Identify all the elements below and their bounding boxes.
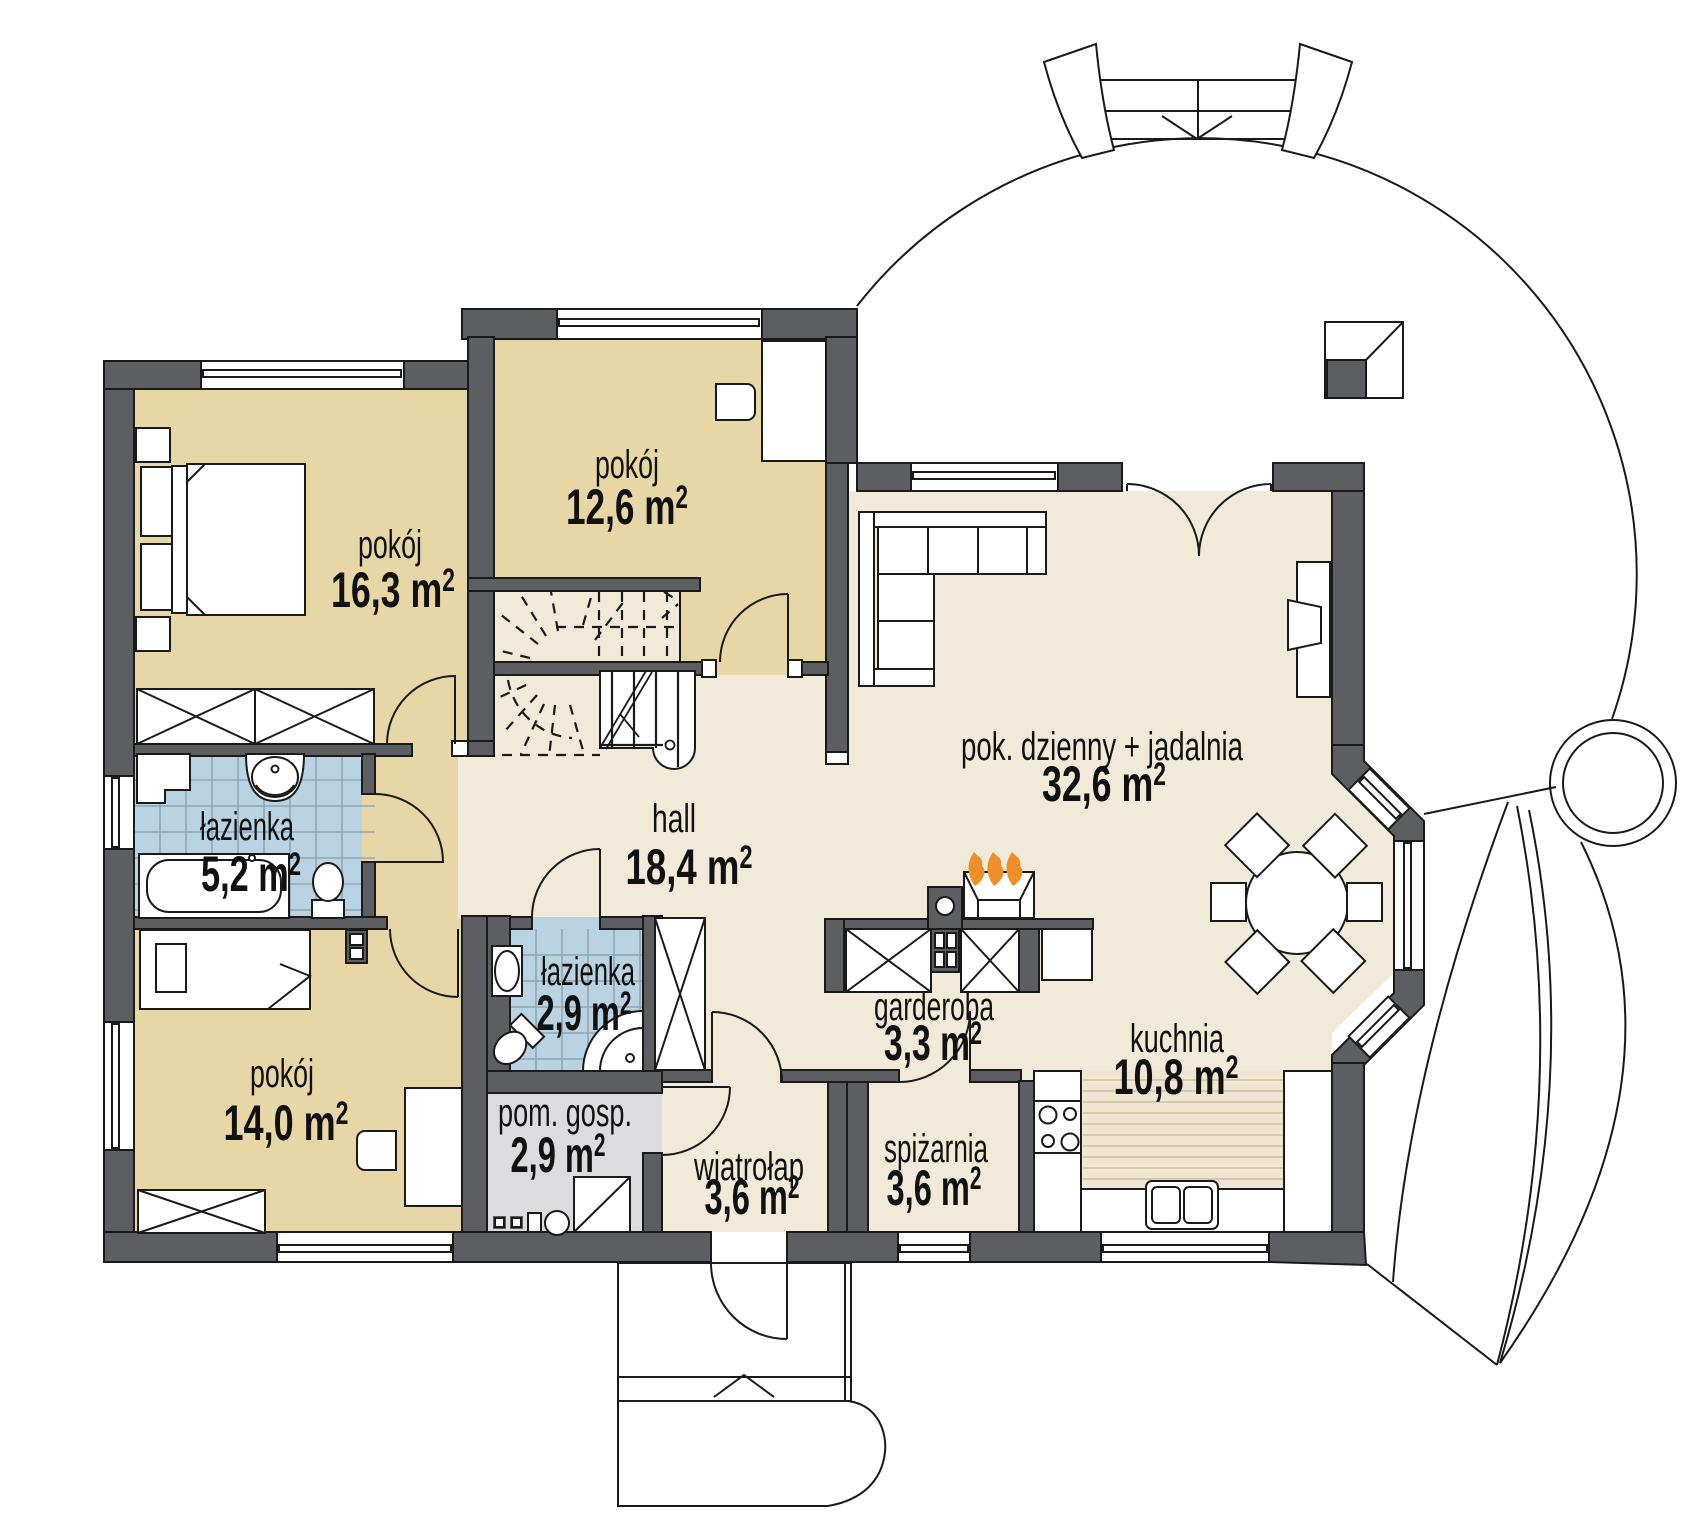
svg-text:2,9 m2: 2,9 m2 (537, 985, 632, 1041)
svg-text:3,3 m2: 3,3 m2 (884, 1015, 982, 1071)
svg-text:2,9 m2: 2,9 m2 (511, 1127, 606, 1183)
svg-text:hall: hall (652, 797, 696, 841)
svg-text:16,3 m2: 16,3 m2 (331, 562, 455, 618)
svg-text:12,6 m2: 12,6 m2 (566, 479, 688, 535)
svg-text:3,6 m2: 3,6 m2 (705, 1169, 800, 1225)
svg-text:pokój: pokój (358, 523, 422, 567)
svg-text:18,4 m2: 18,4 m2 (626, 839, 753, 895)
svg-text:5,2 m2: 5,2 m2 (201, 846, 301, 902)
svg-text:10,8 m2: 10,8 m2 (1114, 1049, 1239, 1105)
svg-text:pokój: pokój (250, 1052, 314, 1096)
svg-text:3,6 m2: 3,6 m2 (887, 1160, 982, 1216)
svg-text:łazienka: łazienka (200, 805, 294, 849)
svg-text:32,6 m2: 32,6 m2 (1042, 756, 1166, 812)
svg-text:14,0 m2: 14,0 m2 (224, 1095, 349, 1151)
